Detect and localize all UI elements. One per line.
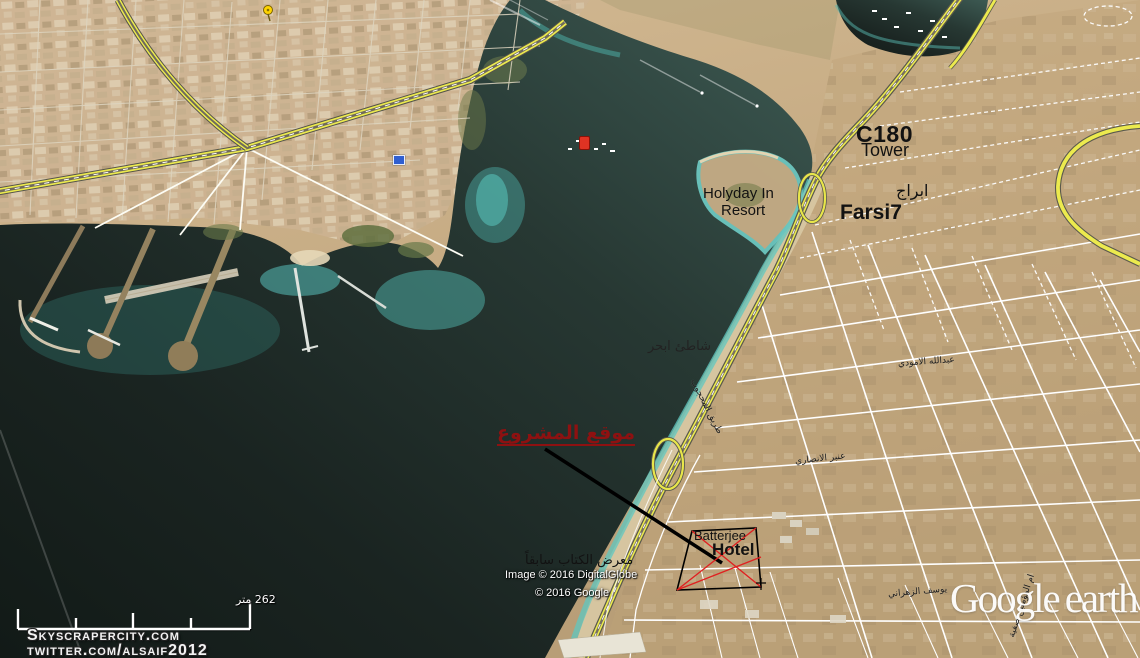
label-c180-tower: Tower xyxy=(861,141,909,159)
label-project-site: موقع المشروع xyxy=(497,424,635,446)
project-pointer-line xyxy=(545,449,722,563)
google-earth-logo-earth: earth xyxy=(1065,575,1137,621)
blue-placemark-icon[interactable] xyxy=(393,155,405,165)
label-beach: شاطئ ابحر xyxy=(648,340,711,353)
label-batterjee-hotel: Hotel xyxy=(712,541,755,558)
yellow-pushpin-icon[interactable] xyxy=(260,4,276,27)
red-marina-icon[interactable] xyxy=(579,136,590,150)
google-copyright: © 2016 Google xyxy=(535,588,609,599)
label-farsi7: Farsi7 xyxy=(840,202,902,223)
google-earth-logo: Googleearth xyxy=(950,574,1137,622)
imagery-attribution: Image © 2016 DigitalGlobe xyxy=(505,570,637,581)
google-earth-viewport[interactable]: C180 Tower ابراج Farsi7 Holyday In Resor… xyxy=(0,0,1140,658)
google-earth-logo-google: Google xyxy=(950,575,1059,621)
label-abraj: ابراج xyxy=(896,183,929,199)
label-holyday-in: Holyday In xyxy=(703,186,774,201)
label-book-fair: معرض الكتاب سابقاً xyxy=(525,554,633,567)
scale-label: 262 متر xyxy=(236,594,276,605)
watermark-twitter: twitter.com/alsaif2012 xyxy=(27,643,208,658)
label-holyday-resort: Resort xyxy=(721,203,765,218)
